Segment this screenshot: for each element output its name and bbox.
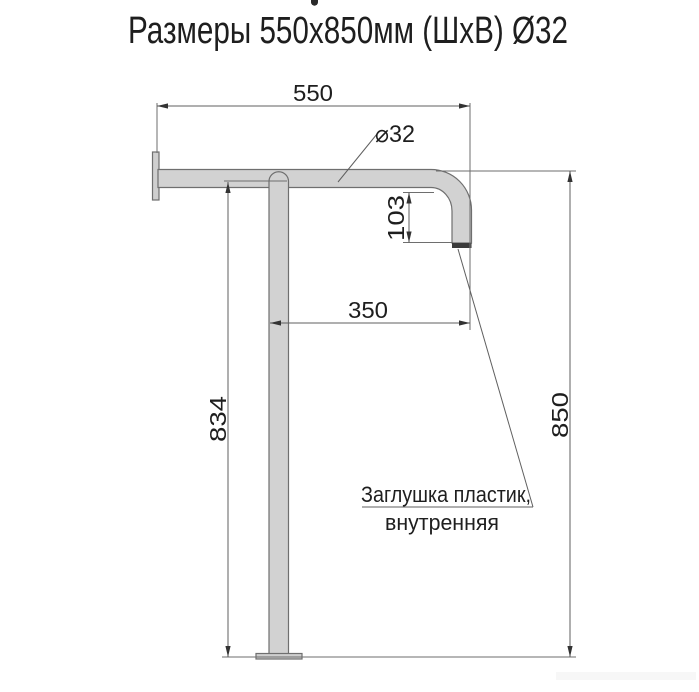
technical-drawing-page: Размеры 550x850мм (ШхВ) Ø32 550 ⌀32 103 … <box>0 0 699 692</box>
drawing-title: Размеры 550x850мм (ШхВ) Ø32 <box>128 10 568 52</box>
dimension-label-diameter: ⌀32 <box>375 121 415 148</box>
dimension-label-550: 550 <box>293 80 333 106</box>
vertical-post <box>269 172 289 654</box>
note-label-line1: Заглушка пластик, <box>361 482 531 507</box>
end-cap <box>452 243 472 248</box>
note-label-line2: внутренняя <box>385 510 499 535</box>
dimension-label-834: 834 <box>205 396 231 442</box>
dimension-label-850: 850 <box>547 392 573 438</box>
dimension-label-103: 103 <box>383 195 409 241</box>
floor-flange <box>256 654 302 660</box>
dimension-label-350: 350 <box>348 297 388 323</box>
canvas-background <box>0 0 699 692</box>
watermark-remnant <box>556 672 696 680</box>
grab-bar-dimension-diagram: Размеры 550x850мм (ШхВ) Ø32 550 ⌀32 103 … <box>0 0 699 692</box>
